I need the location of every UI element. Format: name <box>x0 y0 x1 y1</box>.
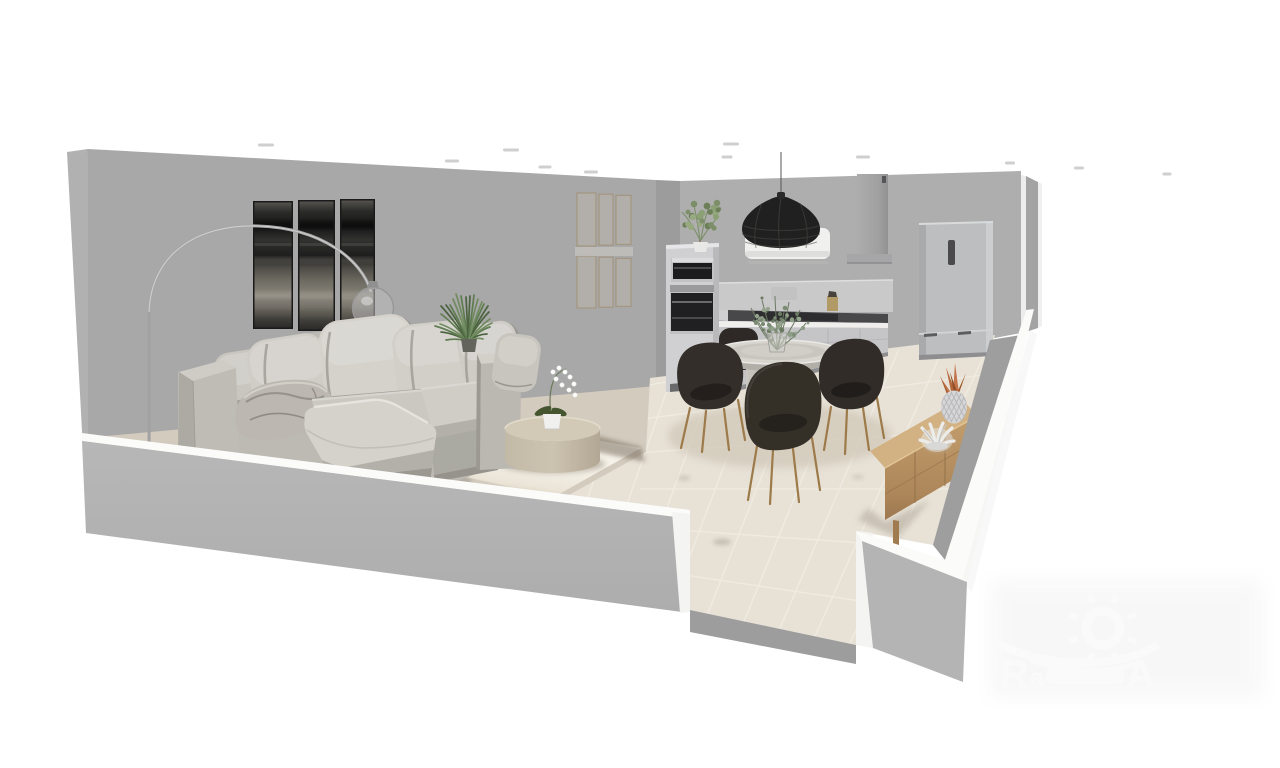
svg-text:A: A <box>1126 653 1155 697</box>
svg-text:a: a <box>1030 662 1045 692</box>
svg-text:R: R <box>1000 653 1029 697</box>
